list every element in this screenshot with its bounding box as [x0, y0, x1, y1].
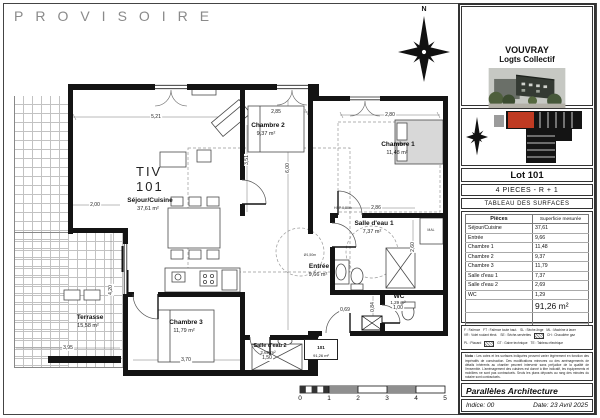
cell-room: Chambre 2 — [466, 252, 533, 262]
table-row: Chambre 111,48 — [466, 243, 589, 253]
entrance-lot-tag: 101 91,26 m² — [304, 339, 338, 360]
legend-item: TE : Tableau électrique — [531, 341, 564, 347]
cell-area: 2,69 — [533, 281, 589, 291]
annotation-circle: Ø1,50m — [304, 253, 316, 257]
cell-empty — [466, 313, 533, 324]
dim-chambre2-width: 2,85 — [270, 109, 282, 115]
north-label: N — [421, 6, 426, 13]
legend-item: FT : Faïence toute haut. — [483, 328, 517, 332]
surface-table-title: TABLEAU DES SURFACES — [461, 198, 593, 209]
entrance-lot-area: 91,26 m² — [307, 354, 335, 358]
dim-hall-width: 0,69 — [339, 307, 351, 313]
table-row: Séjour/Cuisine37,61 — [466, 224, 589, 234]
room-label-sde1: Salle d'eau 1 — [354, 220, 393, 227]
room-label-terrasse: Terrasse — [77, 314, 104, 321]
revision-date: Date: 23 Avril 2025 — [533, 402, 588, 409]
legend-gaine-icon — [484, 341, 494, 347]
revision-row: Indice: 00 Date: 23 Avril 2025 — [461, 399, 593, 412]
legend-item: PL : Placard — [464, 341, 481, 347]
surface-table: Pièces Superficie mesurée Séjour/Cuisine… — [465, 214, 589, 334]
dim-sde1-height: 2,60 — [410, 241, 416, 253]
legend-item: VR : Volet roulant élect. — [464, 333, 497, 339]
room-area-entree: 9,66 m² — [309, 272, 328, 278]
room-label-sde2: Salle d'eau 2 — [253, 343, 286, 349]
unit-label: TIV 101 — [136, 165, 164, 195]
legend-section: F : Faïence FT : Faïence toute haut. SL … — [461, 325, 593, 350]
room-area-sejour: 37,61 m² — [137, 206, 159, 212]
cell-room: Salle d'eau 1 — [466, 271, 533, 281]
compass-icon — [398, 16, 450, 82]
dim-terrasse-width: 3,95 — [62, 345, 74, 351]
room-area-terrasse: 15,58 m² — [77, 323, 99, 329]
dim-sde1-width: 2,86 — [370, 205, 382, 211]
scale-bar — [300, 386, 445, 393]
scale-tick-2: 2 — [356, 395, 360, 402]
room-label-entree: Entrée — [309, 263, 329, 270]
cell-area: 9,66 — [533, 233, 589, 243]
cell-empty — [533, 313, 589, 324]
annotation-hsp: HSP 0,80m — [334, 206, 352, 210]
dim-wc-height: 0,84 — [370, 301, 376, 313]
table-row: Salle d'eau 22,69 — [466, 281, 589, 291]
cell-area: 9,37 — [533, 252, 589, 262]
room-label-chambre1: Chambre 1 — [381, 141, 415, 148]
floor-plan-drawing — [0, 0, 455, 418]
siteplan-section — [461, 108, 593, 166]
col-header-pieces: Pièces — [466, 215, 533, 224]
technical-shaft — [362, 316, 382, 330]
table-row: Chambre 29,37 — [466, 252, 589, 262]
cell-room: WC — [466, 290, 533, 300]
legend-item: SE : Sèche-serviettes — [500, 333, 531, 339]
dim-sde2-width: 1,50 — [261, 355, 273, 361]
cell-room: Salle d'eau 2 — [466, 281, 533, 291]
annotation-closet: MAL — [427, 228, 434, 232]
table-header-row: Pièces Superficie mesurée — [466, 215, 589, 224]
scale-tick-0: 0 — [298, 395, 302, 402]
dim-chambre1-width: 2,80 — [384, 112, 396, 118]
col-header-superficie: Superficie mesurée — [533, 215, 589, 224]
scale-tick-4: 4 — [414, 395, 418, 402]
surface-table-section: Pièces Superficie mesurée Séjour/Cuisine… — [461, 211, 593, 323]
revision-index: Indice: 00 — [466, 402, 494, 409]
dim-chambre2-height: 3,51 — [244, 154, 250, 166]
cell-total-area: 91,26 m² — [533, 300, 589, 313]
dim-chambre3-width: 3,70 — [180, 357, 192, 363]
project-subtitle: Logts Collectif — [462, 56, 592, 65]
legend-placard-icon — [534, 333, 544, 339]
legend-item: F : Faïence — [464, 328, 480, 332]
title-block: VOUVRAY Logts Collectif — [458, 3, 596, 415]
legend-item: GT : Gaine technique — [497, 341, 527, 347]
cell-room: Chambre 3 — [466, 262, 533, 272]
legend-item: CH : Chaudière gaz — [547, 333, 575, 339]
room-area-chambre1: 11,48 m² — [386, 150, 407, 156]
cell-area: 11,79 — [533, 262, 589, 272]
nota-text: Les cotes et les surfaces indiquées peuv… — [465, 354, 589, 378]
room-label-wc: WC — [394, 293, 405, 300]
cell-room: Chambre 1 — [466, 243, 533, 253]
cell-area: 11,48 — [533, 243, 589, 253]
building-photo — [485, 68, 569, 110]
room-label-chambre2: Chambre 2 — [251, 122, 285, 129]
legend-item: ML : Machine à laver — [546, 328, 575, 332]
table-spacer-row — [466, 313, 589, 324]
room-area-chambre3: 11,79 m² — [173, 328, 194, 334]
table-total-row: 91,26 m² — [466, 300, 589, 313]
scale-tick-1: 1 — [327, 395, 331, 402]
apartment-type: 4 PIECES - R + 1 — [461, 184, 593, 196]
cell-room: Séjour/Cuisine — [466, 224, 533, 234]
table-row: Entrée9,66 — [466, 233, 589, 243]
scale-tick-5: 5 — [443, 395, 447, 402]
legend-item: SL : Sèche-linge — [520, 328, 543, 332]
room-area-sde1: 7,37 m² — [363, 229, 382, 235]
nota-section: Nota : Les cotes et les surfaces indiqué… — [461, 352, 593, 381]
dim-sejour-width: 5,21 — [150, 114, 162, 120]
dim-sejour-height: 6,00 — [285, 162, 291, 174]
project-section: VOUVRAY Logts Collectif — [461, 6, 593, 106]
dim-terrasse-height: 4,20 — [108, 284, 114, 296]
scale-tick-3: 3 — [385, 395, 389, 402]
table-row: Salle d'eau 17,37 — [466, 271, 589, 281]
unit-number: 101 — [136, 180, 164, 195]
drawing-sheet: PROVISOIRE — [0, 0, 600, 418]
table-row: Chambre 311,79 — [466, 262, 589, 272]
lot-number: Lot 101 — [461, 168, 593, 182]
room-area-chambre2: 9,37 m² — [257, 131, 276, 137]
siteplan-compass-icon — [464, 115, 490, 159]
room-label-chambre3: Chambre 3 — [169, 319, 203, 326]
cell-area: 37,61 — [533, 224, 589, 234]
dim-wc-width: 1,00 — [392, 305, 404, 311]
cell-room: Entrée — [466, 233, 533, 243]
cell-empty — [466, 300, 533, 313]
siteplan-map — [490, 109, 590, 165]
cell-area: 1,29 — [533, 290, 589, 300]
cell-area: 7,37 — [533, 271, 589, 281]
nota-label: Nota : — [465, 354, 475, 358]
architect-name: Parallèles Architecture — [461, 383, 593, 397]
room-label-sejour: Séjour/Cuisine — [127, 197, 173, 204]
dim-balcon: 2,00 — [89, 202, 101, 208]
unit-type: TIV — [136, 165, 164, 180]
table-row: WC1,29 — [466, 290, 589, 300]
